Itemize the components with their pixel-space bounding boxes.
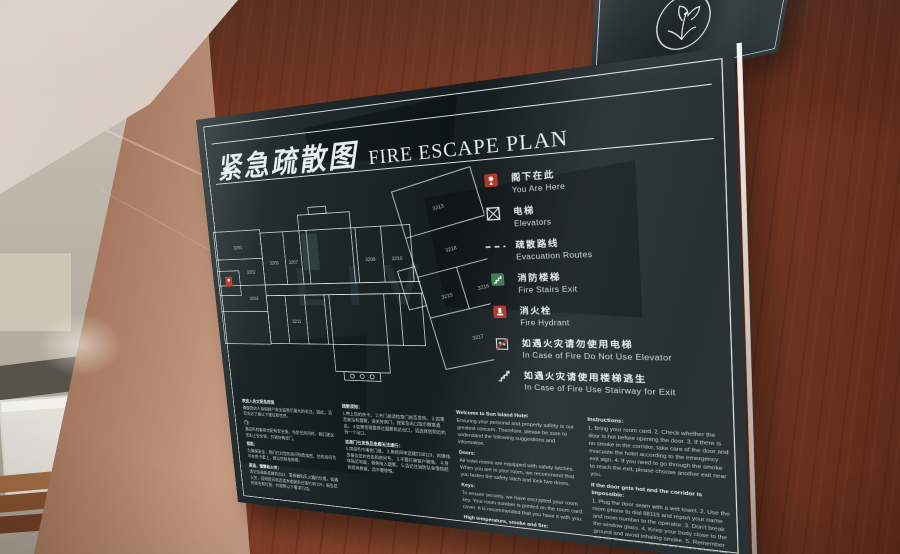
room-number-label: 3205 [269, 260, 279, 266]
room-number-label: 3215 [441, 291, 454, 300]
legend-item-elevators: 电梯 Elevators [482, 190, 734, 230]
legend-label-en: Fire Hydrant [520, 318, 570, 327]
room-number-label: 3218 [445, 244, 459, 253]
legend-label-en: You Are Here [512, 182, 566, 195]
block-body: 1. Bring your room card. 2. Check whethe… [588, 426, 731, 491]
fire-escape-plan-sign: 紧急疏散图 FIRE ESCAPE PLAN LIV [196, 46, 750, 554]
legend-label-zh: 消火栓 [519, 304, 569, 317]
column-chinese-welcome: 欢迎入住太阳岛宾馆 确保您的人身和财产安全是我们最大的关注。因此，请您务必了解以… [242, 396, 344, 509]
door-edge-highlight [20, 300, 140, 390]
block-body: Ensuring your personal and property safe… [456, 418, 579, 455]
room-number-label: 3202 [247, 269, 257, 275]
block-body: 1.带上您的房卡。 2.开门前请检查门是否发热。 3.如果走廊没有烟雾，请关好房… [342, 411, 449, 443]
room-number-label: 3203 [249, 296, 259, 302]
no-elevator-icon [491, 336, 514, 359]
legend-label-zh: 疏散路线 [515, 235, 592, 251]
legend-label-en: Evacuation Routes [516, 250, 593, 262]
legend-item-use-stairway: 如遇火灾请使用楼梯逃生 In Case of Fire Use Stairway… [493, 368, 740, 400]
room-number-label: 3217 [471, 333, 485, 342]
right-wing-walls [375, 167, 497, 373]
column-chinese-instructions: 疏散须知： 1.带上您的房卡。 2.开门前请检查门是否发热。 3.如果走廊没有烟… [341, 401, 455, 522]
legend: 阁下在此 You Are Here 电梯 Elevators 疏散路线 Evac… [480, 152, 741, 410]
legend-label-en: Elevators [514, 217, 552, 228]
room-number-label: 3211 [292, 319, 302, 325]
legend-label-zh: 如遇火灾请勿使用电梯 [521, 337, 671, 352]
elevator-lobby-fill [301, 233, 320, 270]
you-are-here-marker [225, 277, 232, 287]
room-number-label: 3207 [288, 259, 299, 265]
column-english-instructions: Instructions: 1. Bring your room card. 2… [587, 413, 733, 554]
legend-item-no-elevator: 如遇火灾请勿使用电梯 In Case of Fire Do Not Use El… [491, 336, 739, 364]
elevator-icon [482, 205, 505, 230]
you-are-here-icon [480, 172, 503, 197]
legend-label-zh: 消防楼梯 [517, 270, 577, 284]
floor-plan: 3201 3202 3203 3205 3207 3209 3210 3211 … [207, 165, 497, 394]
legend-item-fire-stairs: 消防楼梯 Fire Stairs Exit [486, 265, 736, 295]
photo-scene: 太阳岛宾馆 SUN ISLAND HOTEL 紧急疏散图 FIRE ESCAPE… [0, 0, 900, 554]
legend-label-zh: 电梯 [513, 202, 551, 217]
legend-item-fire-hydrant: 消火栓 Fire Hydrant [489, 302, 738, 328]
legend-label-en: Fire Stairs Exit [518, 285, 578, 295]
room-number-label: 3213 [432, 202, 446, 212]
title-english: FIRE ESCAPE PLAN [368, 125, 569, 169]
legend-label-en: In Case of Fire Do Not Use Elevator [522, 351, 672, 363]
fire-hydrant-icon [489, 304, 512, 327]
room-number-label: 3201 [233, 245, 243, 251]
room-number-label: 3209 [365, 256, 377, 262]
fire-stairs-icon [486, 272, 509, 295]
dashed-route-icon [484, 239, 507, 263]
stairway-exit-icon [493, 368, 516, 391]
room-number-label: 3210 [392, 255, 404, 261]
floor-plan-walls [211, 200, 428, 383]
column-english-welcome: Welcome to Sun Island Hotel Ensuring you… [456, 407, 584, 537]
legend-label-zh: 阁下在此 [511, 166, 565, 183]
legend-item-evacuation-routes: 疏散路线 Evacuation Routes [484, 228, 735, 263]
